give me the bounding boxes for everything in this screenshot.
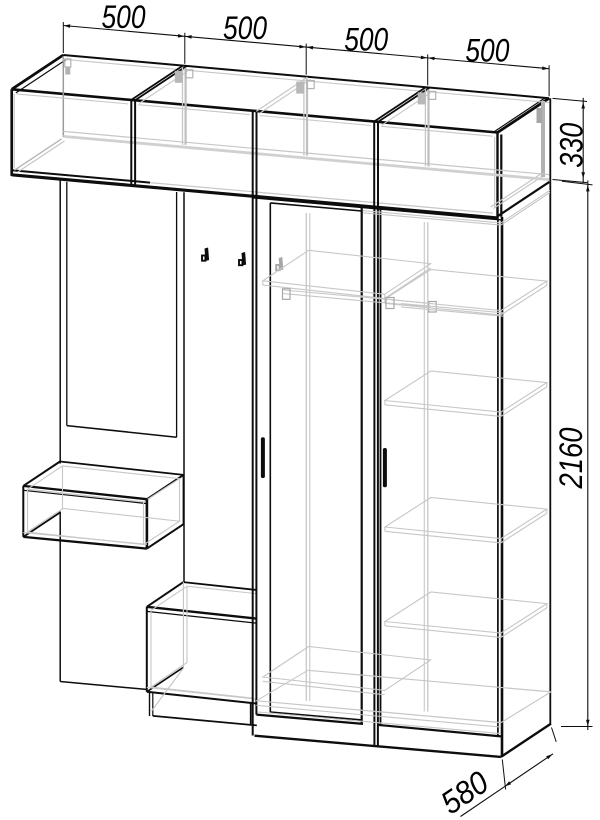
svg-text:500: 500: [102, 0, 146, 35]
svg-text:500: 500: [223, 10, 267, 46]
svg-text:2160: 2160: [553, 427, 589, 489]
svg-text:500: 500: [344, 21, 388, 57]
svg-text:500: 500: [465, 33, 509, 69]
svg-text:330: 330: [553, 123, 589, 168]
